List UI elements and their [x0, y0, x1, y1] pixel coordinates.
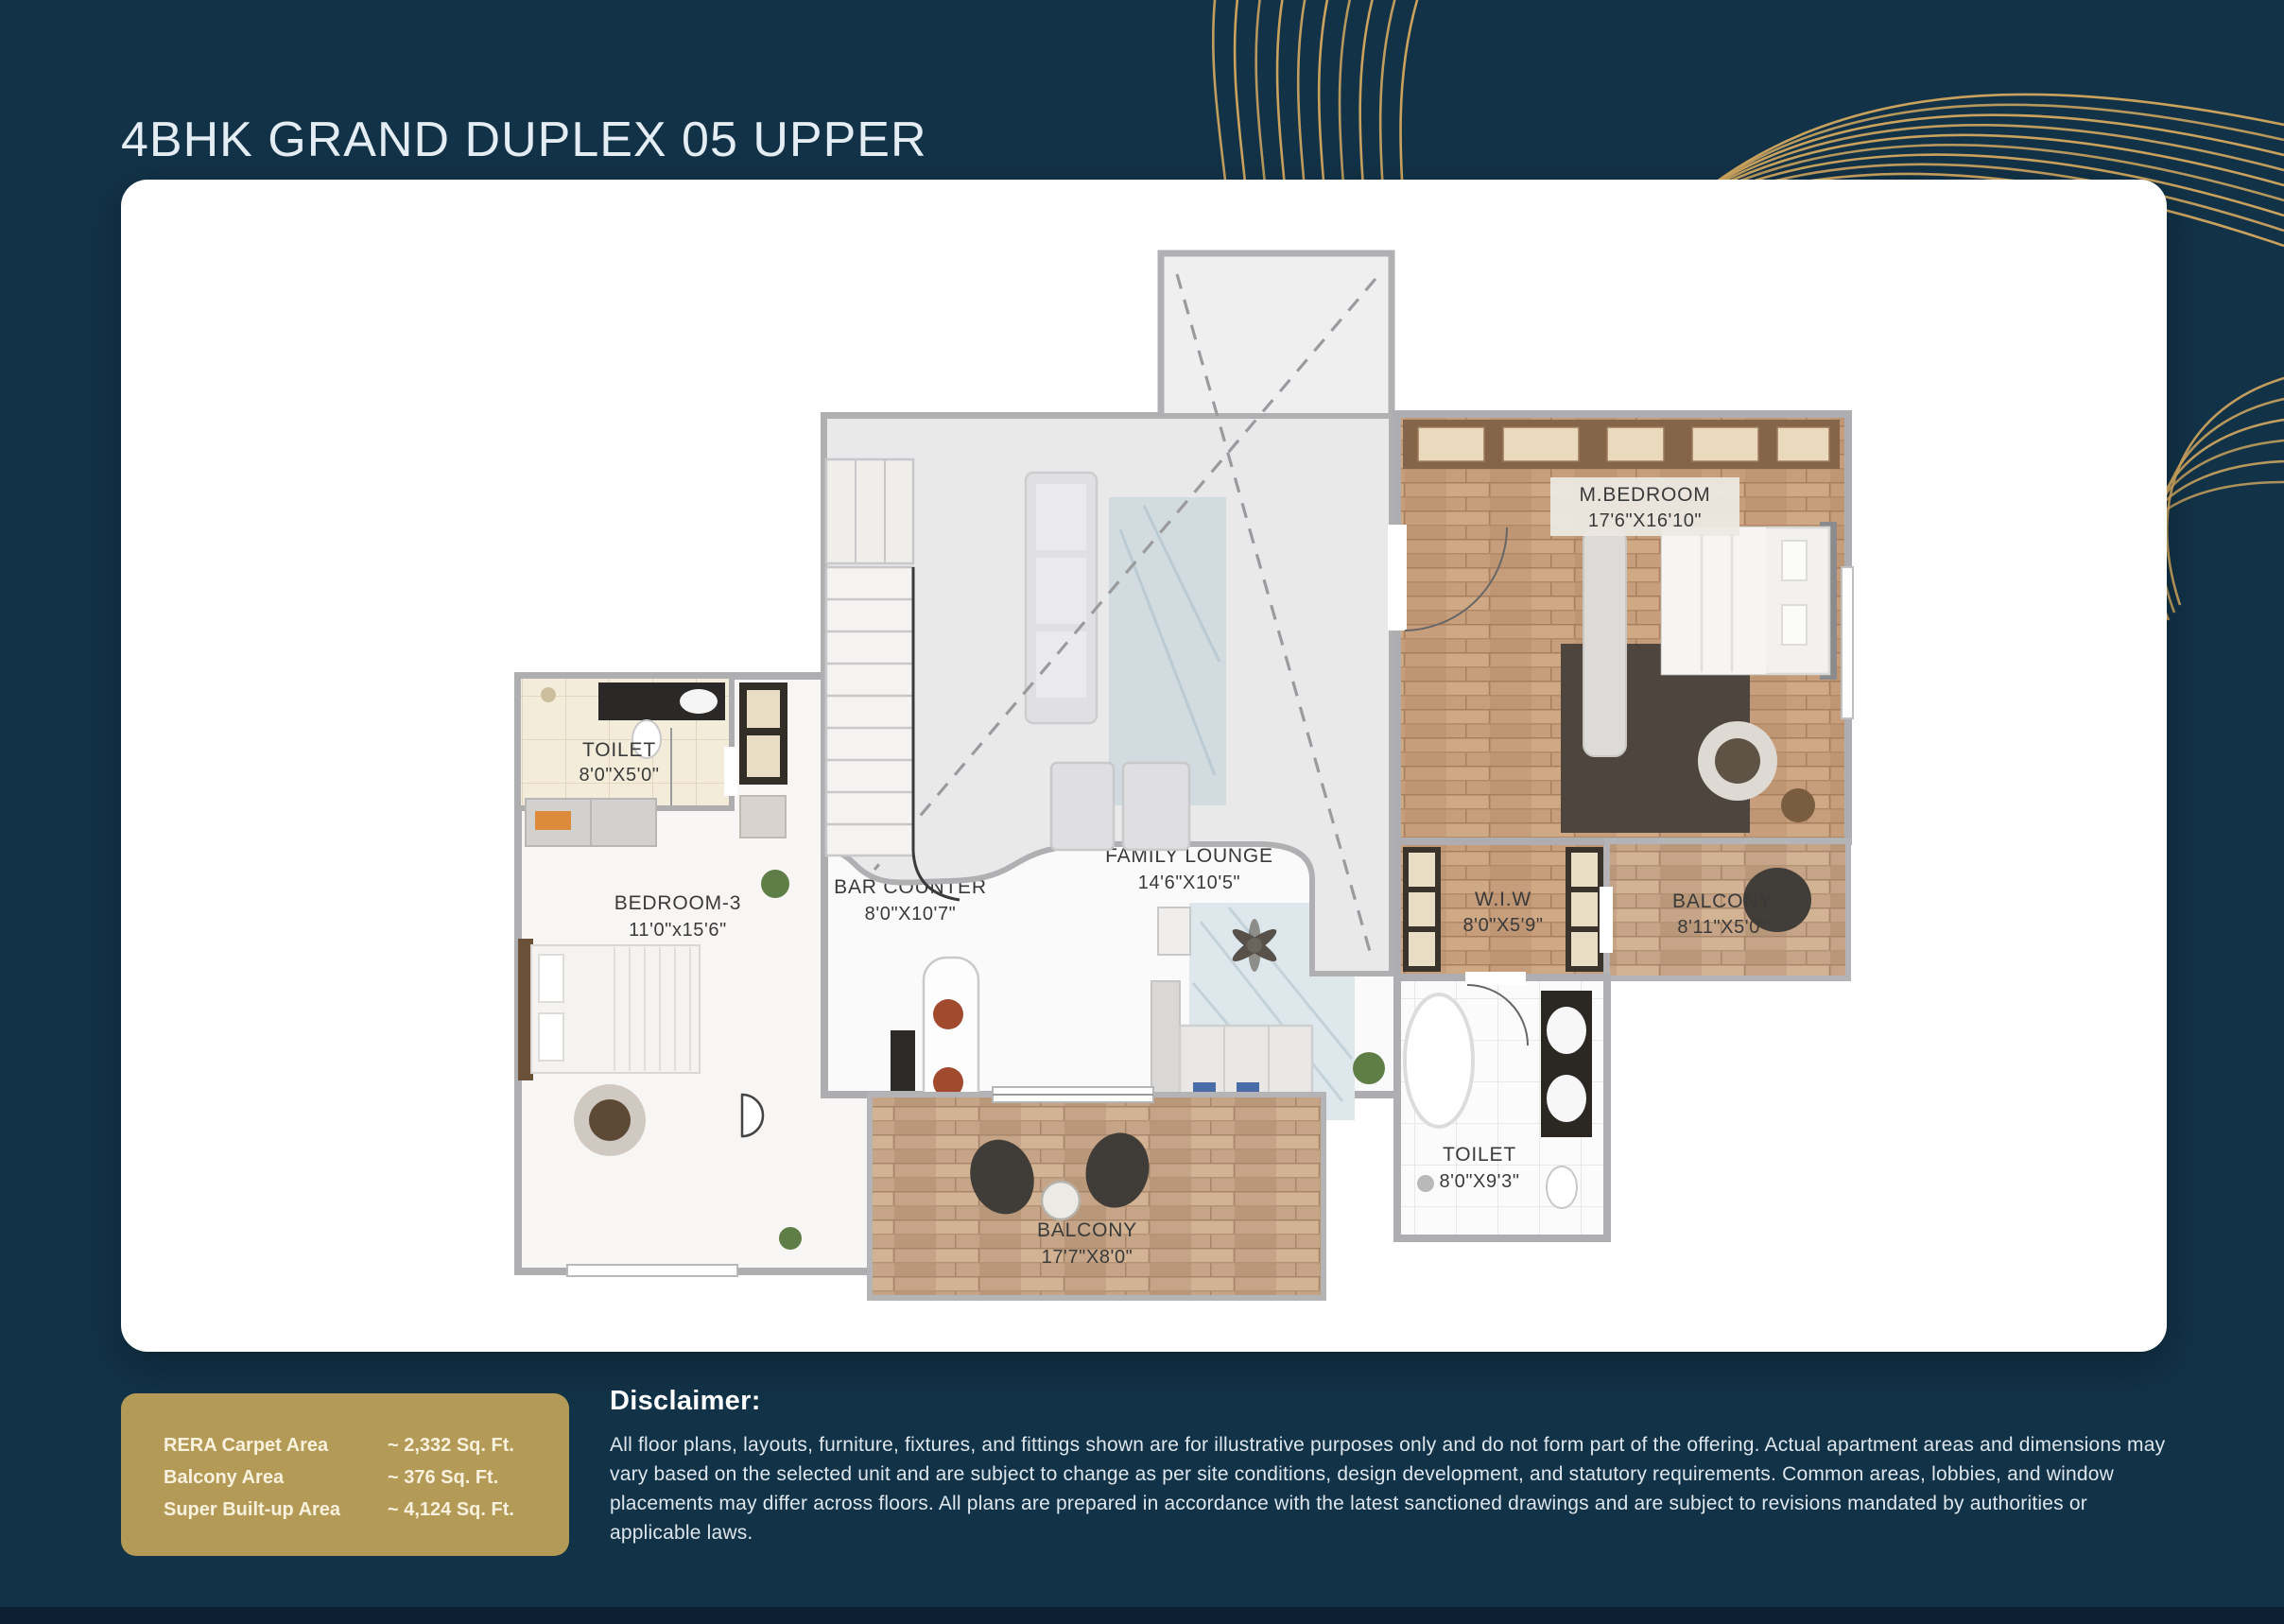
area-value: ~ 2,332 Sq. Ft. — [388, 1435, 569, 1457]
toilet2-door-gap — [1465, 972, 1526, 985]
disclaimer-body: All floor plans, layouts, furniture, fix… — [610, 1430, 2170, 1547]
toilet-upper-label: TOILET — [582, 739, 656, 761]
area-row-balcony: Balcony Area ~ 376 Sq. Ft. — [164, 1461, 569, 1494]
corridor-shoe-rack — [740, 796, 786, 838]
mbedroom-stool — [1781, 788, 1815, 822]
bedroom3-plant-1 — [761, 870, 789, 898]
toilet-lower-dims: 8'0"X9'3" — [1439, 1171, 1519, 1192]
void-ghost-chair-2 — [1123, 763, 1189, 850]
bedroom3-plant-2 — [779, 1227, 802, 1250]
area-label: Balcony Area — [164, 1467, 388, 1489]
bedroom3-wardrobe-item — [535, 811, 571, 830]
area-row-super-builtup: Super Built-up Area ~ 4,124 Sq. Ft. — [164, 1494, 569, 1526]
room-wiw: W.I.W 8'0"X5'9" — [1397, 841, 1607, 977]
area-value: ~ 4,124 Sq. Ft. — [388, 1499, 569, 1521]
mbedroom-window — [1842, 567, 1853, 718]
disclaimer-section: Disclaimer: All floor plans, layouts, fu… — [610, 1386, 2170, 1547]
bottom-accent-strip — [0, 1607, 2284, 1624]
room-balcony-bottom: BALCONY 17'7"X8'0" — [870, 1087, 1324, 1298]
toilet2-sink-2 — [1547, 1075, 1586, 1122]
area-summary-box: RERA Carpet Area ~ 2,332 Sq. Ft. Balcony… — [121, 1393, 569, 1556]
mbedroom-bench — [1583, 529, 1626, 756]
page-title: 4BHK GRAND DUPLEX 05 UPPER — [121, 112, 927, 168]
balcony-bottom-dims: 17'7"X8'0" — [1042, 1247, 1133, 1268]
bar-stool-1 — [933, 999, 963, 1029]
bedroom3-dims: 11'0"x15'6" — [629, 920, 727, 941]
bedroom3-bed — [518, 939, 700, 1080]
area-label: RERA Carpet Area — [164, 1435, 388, 1457]
mbedroom-door-gap — [1388, 525, 1407, 631]
toilet-upper-dims: 8'0"X5'0" — [579, 765, 659, 786]
brochure-page: 4BHK GRAND DUPLEX 05 UPPER — [0, 0, 2284, 1624]
floor-plan: BEDROOM-3 11'0"x15'6" TOILET 8'0"X5'0" — [121, 180, 2167, 1352]
disclaimer-heading: Disclaimer: — [610, 1386, 2170, 1417]
lounge-side-table — [1158, 907, 1190, 955]
area-value: ~ 376 Sq. Ft. — [388, 1467, 569, 1489]
mbedroom-bed — [1662, 522, 1837, 680]
bedroom3-window — [567, 1265, 737, 1276]
toilet1-shower-head — [541, 687, 556, 702]
toilet1-door-gap — [724, 747, 737, 796]
room-m-bedroom: M.BEDROOM 17'6"X16'10" — [1388, 414, 1853, 841]
room-toilet-lower: TOILET 8'0"X9'3" — [1397, 972, 1607, 1238]
wiw-dims: 8'0"X5'9" — [1462, 915, 1543, 936]
wiw-label: W.I.W — [1475, 889, 1531, 910]
toilet1-sink — [680, 689, 718, 714]
bar-counter-dims: 8'0"X10'7" — [865, 904, 957, 924]
toilet2-wc — [1547, 1166, 1577, 1208]
floor-plan-card: BEDROOM-3 11'0"x15'6" TOILET 8'0"X5'0" — [121, 180, 2167, 1352]
balcony-right-dims: 8'11"X5'0" — [1677, 917, 1767, 938]
family-lounge-dims: 14'6"X10'5" — [1138, 872, 1241, 893]
bedroom3-label: BEDROOM-3 — [614, 892, 741, 914]
area-label: Super Built-up Area — [164, 1499, 388, 1521]
area-row-rera: RERA Carpet Area ~ 2,332 Sq. Ft. — [164, 1429, 569, 1461]
balcony-right-door-gap — [1600, 887, 1613, 953]
balcony-bottom-label: BALCONY — [1037, 1219, 1137, 1241]
toilet-lower-label: TOILET — [1443, 1144, 1516, 1166]
toilet2-sink-1 — [1547, 1007, 1586, 1054]
bar-tv-console — [891, 1030, 915, 1091]
void-ghost-chair-1 — [1051, 763, 1114, 850]
toilet2-bathtub — [1405, 994, 1473, 1127]
m-bedroom-dims: 17'6"X16'10" — [1588, 510, 1702, 531]
lounge-plant — [1353, 1052, 1385, 1084]
balcony-right-label: BALCONY — [1672, 890, 1773, 912]
balcony-table — [1042, 1182, 1080, 1219]
room-balcony-right: BALCONY 8'11"X5'0" — [1600, 841, 1848, 978]
m-bedroom-label: M.BEDROOM — [1579, 484, 1710, 506]
toilet2-drain — [1417, 1175, 1434, 1192]
